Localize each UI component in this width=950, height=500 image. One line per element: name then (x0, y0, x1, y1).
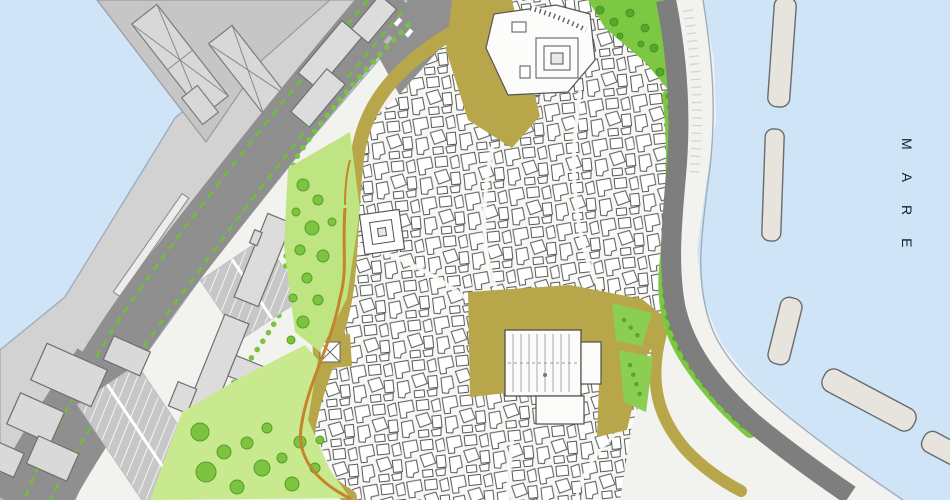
tree (313, 195, 323, 205)
tree (617, 33, 623, 39)
tree (313, 295, 323, 305)
tree (626, 9, 634, 17)
tree (328, 218, 336, 226)
tree (302, 273, 312, 283)
tree (289, 294, 297, 302)
tree (656, 68, 664, 76)
tree (277, 453, 287, 463)
tree (610, 18, 618, 26)
tree (254, 460, 270, 476)
tree (596, 6, 604, 14)
tree (262, 423, 272, 433)
tree (196, 462, 216, 482)
tree (641, 24, 649, 32)
breakwater (762, 129, 785, 242)
town-plan-map: MARE (0, 0, 950, 500)
tree (305, 221, 319, 235)
tree (316, 436, 324, 444)
tree (638, 41, 644, 47)
tree (317, 250, 329, 262)
tree (295, 245, 305, 255)
sea-label: MARE (899, 138, 915, 270)
tree (191, 423, 209, 441)
tree (241, 437, 253, 449)
tree (285, 477, 299, 491)
tree (217, 445, 231, 459)
tree (297, 316, 309, 328)
tree (292, 208, 300, 216)
cloister-building (359, 209, 404, 254)
tree (230, 480, 244, 494)
map-canvas: MARE (0, 0, 950, 500)
tree (650, 44, 658, 52)
tree (287, 336, 295, 344)
tree (297, 179, 309, 191)
